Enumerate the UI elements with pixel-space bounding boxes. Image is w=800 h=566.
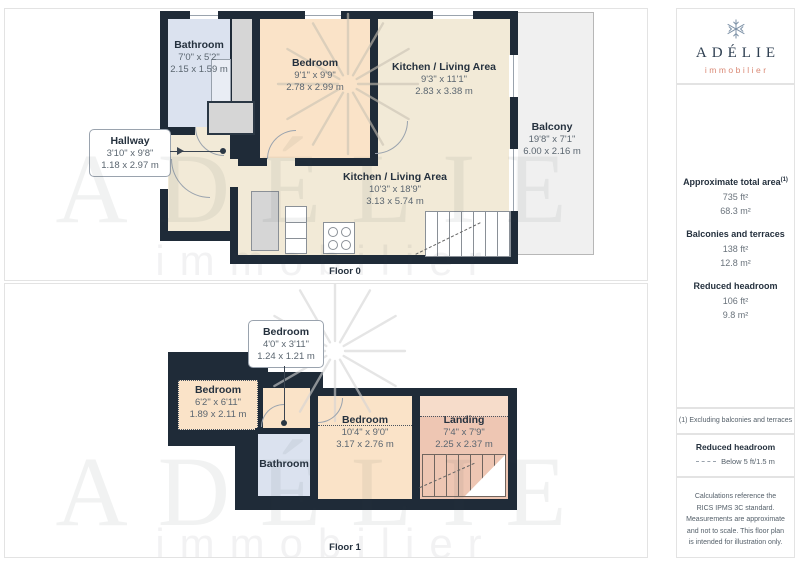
window-line <box>433 15 473 16</box>
footnote-ref: (1) <box>781 177 788 183</box>
logo-tagline: immobilier <box>702 65 768 75</box>
room-landing <box>420 396 508 499</box>
area-value-ft: 106 ft² <box>723 294 749 308</box>
burner-icon <box>328 240 338 250</box>
area-label: Balconies and terraces <box>686 229 785 239</box>
area-value-ft: 735 ft² <box>723 190 749 204</box>
area-value-ft: 138 ft² <box>723 242 749 256</box>
stairs-landing-cut <box>465 455 505 496</box>
footnote-panel: (1) Excluding balconies and terraces <box>676 408 795 434</box>
footnote-text: (1) Excluding balconies and terraces <box>677 409 794 424</box>
balcony-area <box>510 12 594 255</box>
burner-icon <box>341 240 351 250</box>
room-dim-ft: 4'0" x 3'11" <box>263 339 309 350</box>
disclaimer-text: Calculations reference the RICS IPMS 3C … <box>677 478 794 549</box>
area-value-m: 68.3 m² <box>720 204 751 218</box>
legend-title: Reduced headroom <box>677 435 794 452</box>
legend-row: Below 5 ft/1.5 m <box>677 457 794 466</box>
hallway-callout: Hallway 3'10" x 9'8" 1.18 x 2.97 m <box>89 129 171 177</box>
wall-bathroom-top <box>255 428 313 434</box>
stairs-dashed-line <box>415 222 480 254</box>
wall-divider <box>412 388 420 450</box>
bedroom-small-callout: Bedroom 4'0" x 3'11" 1.24 x 1.21 m <box>248 320 324 368</box>
area-summary: Approximate total area(1) 735 ft² 68.3 m… <box>677 85 794 333</box>
stairs-f1 <box>422 454 506 497</box>
stairs-dashed-line <box>419 463 474 488</box>
floor0-label: Floor 0 <box>170 266 520 277</box>
reduced-headroom-line <box>420 416 508 417</box>
callout-line <box>284 366 285 422</box>
area-value-m: 12.8 m² <box>720 256 751 270</box>
area-value-m: 9.8 m² <box>723 308 749 322</box>
cooktop-icon <box>323 222 355 254</box>
floor1-panel: Bedroom 4'0" x 3'11" 1.24 x 1.21 m Bedro… <box>4 283 648 558</box>
callout-target-dot <box>281 420 287 426</box>
stairs-f0 <box>425 211 511 257</box>
window-line <box>513 55 514 97</box>
credit-suffix: 360 <box>747 556 762 558</box>
burner-icon <box>328 227 338 237</box>
room-dim-ft: 3'10" x 9'8" <box>107 148 154 159</box>
area-label-text: Approximate total area <box>683 177 781 187</box>
room-dim-m: 1.24 x 1.21 m <box>257 351 315 362</box>
reduced-headroom-line <box>318 425 412 426</box>
room-dim-m: 1.18 x 2.97 m <box>101 160 159 171</box>
wall-divider <box>310 388 318 398</box>
door-opening <box>230 159 238 187</box>
area-label: Reduced headroom <box>693 281 777 291</box>
floor0-panel: Bathroom 7'0" x 5'2" 2.15 x 1.59 m Bedro… <box>4 8 648 281</box>
floor1-label: Floor 1 <box>170 542 520 553</box>
reduced-headroom-dash-icon <box>696 461 716 462</box>
area-group-total: Approximate total area(1) 735 ft² 68.3 m… <box>683 177 788 218</box>
room-bedroom-left <box>178 380 258 430</box>
credit-name: GIRAFFE <box>709 556 747 558</box>
callout-target-dot <box>220 148 226 154</box>
area-group-reduced-headroom: Reduced headroom 106 ft² 9.8 m² <box>693 281 777 322</box>
area-group-balconies: Balconies and terraces 138 ft² 12.8 m² <box>686 229 785 270</box>
disclaimer-panel: Calculations reference the RICS IPMS 3C … <box>676 477 795 558</box>
legend-panel: Reduced headroom Below 5 ft/1.5 m <box>676 434 795 477</box>
area-label: Approximate total area(1) <box>683 177 788 187</box>
snowflake-icon <box>725 18 747 40</box>
logo-brand: ADÉLIE <box>691 45 780 62</box>
floorplan-page: Bathroom 7'0" x 5'2" 2.15 x 1.59 m Bedro… <box>0 0 800 566</box>
room-name: Hallway <box>110 135 149 147</box>
legend-item-text: Below 5 ft/1.5 m <box>721 457 775 466</box>
window-line <box>190 15 218 16</box>
burner-icon <box>341 227 351 237</box>
logo: ADÉLIE immobilier <box>677 9 794 75</box>
logo-panel: ADÉLIE immobilier <box>676 8 795 84</box>
bath-fixture <box>211 59 231 105</box>
kitchen-counter <box>285 206 307 254</box>
room-name: Bedroom <box>263 326 309 338</box>
window-line <box>305 15 341 16</box>
areas-panel: Approximate total area(1) 735 ft² 68.3 m… <box>676 84 795 408</box>
giraffe-credit: GIRAFFE360 <box>677 556 794 558</box>
landing-upper-strip <box>420 396 508 416</box>
window-line <box>513 149 514 211</box>
callout-arrowhead-icon <box>177 147 184 155</box>
wardrobe <box>251 191 279 251</box>
door-opening <box>267 158 295 166</box>
room-bathroom-f1 <box>258 434 310 496</box>
